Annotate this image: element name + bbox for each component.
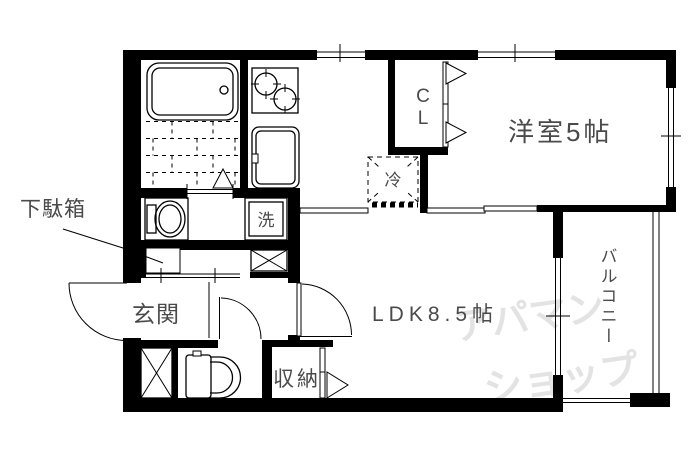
floor-plan: アパマン ショップ	[0, 0, 690, 460]
closet: C L	[416, 62, 466, 147]
storage-door	[320, 348, 348, 398]
floor-plan-drawing: アパマン ショップ	[0, 0, 690, 460]
ldk-label: LDK8.5帖	[372, 303, 498, 326]
bathtub	[147, 63, 238, 120]
entrance-door	[69, 283, 127, 341]
balcony-label: バルコニー	[598, 247, 617, 347]
sliding-door	[427, 206, 537, 213]
bedroom-top-window	[478, 44, 555, 62]
closet-label-c: C	[416, 86, 430, 107]
kitchen-sink	[252, 127, 299, 188]
pipe-space-upper	[251, 250, 287, 271]
toilet-door	[220, 297, 262, 339]
ldk-door	[297, 283, 352, 337]
refrigerator-label: 冷	[385, 171, 402, 190]
closet-bifold-door-icon	[446, 122, 466, 143]
washing-machine-space: 洗	[245, 198, 287, 240]
storage-label: 収納	[273, 368, 321, 391]
western-room-label: 洋室5帖	[508, 117, 612, 147]
bedroom-right-window	[661, 88, 681, 187]
shoe-cabinet-label: 下駄箱	[20, 198, 86, 221]
washing-machine-label: 洗	[258, 211, 275, 230]
gas-stove	[251, 68, 300, 113]
bathroom-folding-door-icon	[213, 169, 233, 188]
pipe-space-lower	[141, 348, 172, 398]
closet-bifold-door-icon	[446, 63, 466, 84]
refrigerator-space: 冷	[368, 157, 418, 202]
entrance-label: 玄関	[132, 301, 180, 327]
kitchen-counter-boundary	[300, 208, 368, 213]
closet-label-l: L	[418, 108, 429, 129]
storage-bifold-door-icon	[327, 372, 348, 398]
kitchen-window	[317, 44, 365, 62]
wash-basin	[145, 198, 188, 240]
shoe-cabinet-box	[146, 248, 180, 273]
toilet	[186, 351, 240, 398]
